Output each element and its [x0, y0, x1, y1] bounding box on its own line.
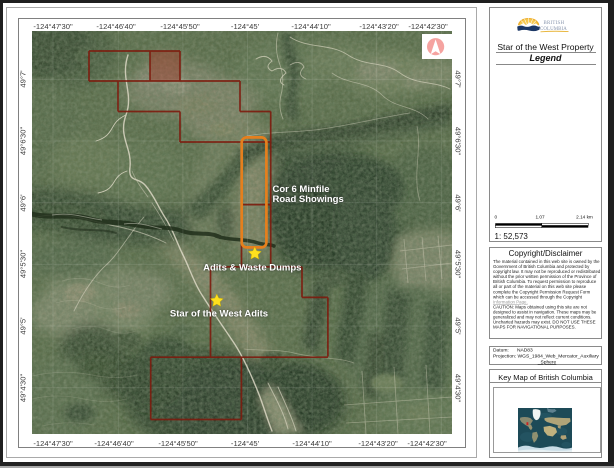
- svg-text:BRITISH: BRITISH: [544, 21, 565, 26]
- svg-text:Star of the West Adits: Star of the West Adits: [170, 309, 268, 320]
- svg-text:Road Showings: Road Showings: [273, 194, 344, 205]
- svg-text:Adits & Waste Dumps: Adits & Waste Dumps: [203, 263, 301, 274]
